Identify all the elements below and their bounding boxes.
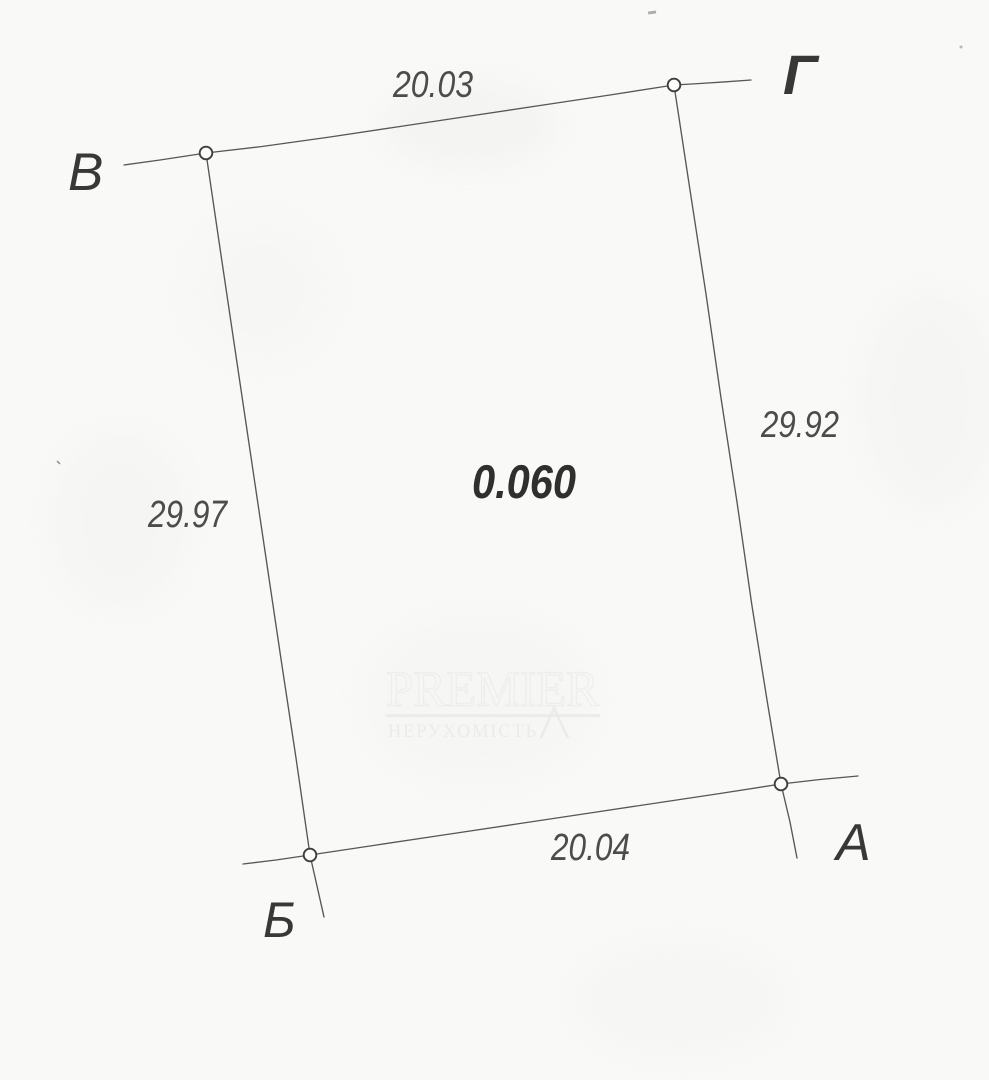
svg-text:0.060: 0.060 <box>472 455 576 508</box>
svg-text:29.92: 29.92 <box>760 404 839 445</box>
svg-text:Г: Г <box>783 43 820 106</box>
svg-text:В: В <box>68 143 103 202</box>
svg-text:20.04: 20.04 <box>550 827 630 869</box>
svg-text:А: А <box>833 814 871 872</box>
svg-text:Б: Б <box>263 892 296 948</box>
svg-text:20.03: 20.03 <box>392 64 473 105</box>
svg-text:PREMIER: PREMIER <box>386 662 599 718</box>
svg-text:НЕРУХОМІСТЬ: НЕРУХОМІСТЬ <box>388 721 538 742</box>
svg-text:29.97: 29.97 <box>147 494 228 536</box>
